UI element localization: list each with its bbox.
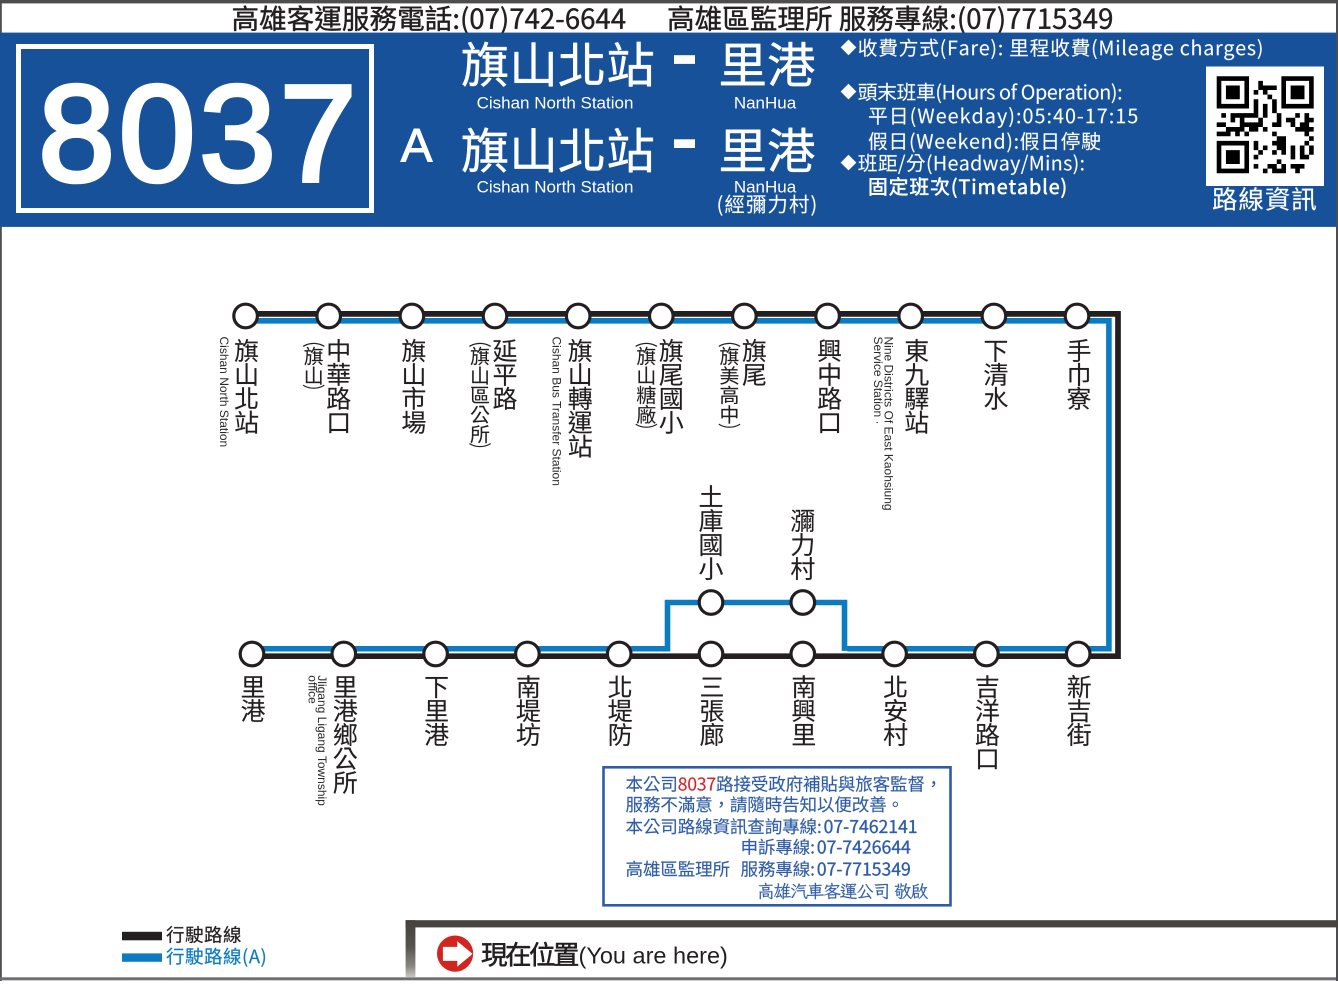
svg-text:Cishan Bus Transfer Station: Cishan Bus Transfer Station <box>550 337 564 486</box>
svg-text:(You are here): (You are here) <box>579 943 728 969</box>
svg-text:office: office <box>305 675 319 704</box>
svg-text:NanHua: NanHua <box>734 94 797 113</box>
svg-text:Cishan North Station: Cishan North Station <box>217 337 231 448</box>
svg-text:8037: 8037 <box>39 58 361 211</box>
svg-text:Service Station ·: Service Station · <box>871 337 885 425</box>
svg-text:NanHua: NanHua <box>734 178 797 197</box>
svg-text:A: A <box>401 119 433 172</box>
svg-text:Cishan North Station: Cishan North Station <box>477 94 634 113</box>
svg-text:Cishan North Station: Cishan North Station <box>477 178 634 197</box>
